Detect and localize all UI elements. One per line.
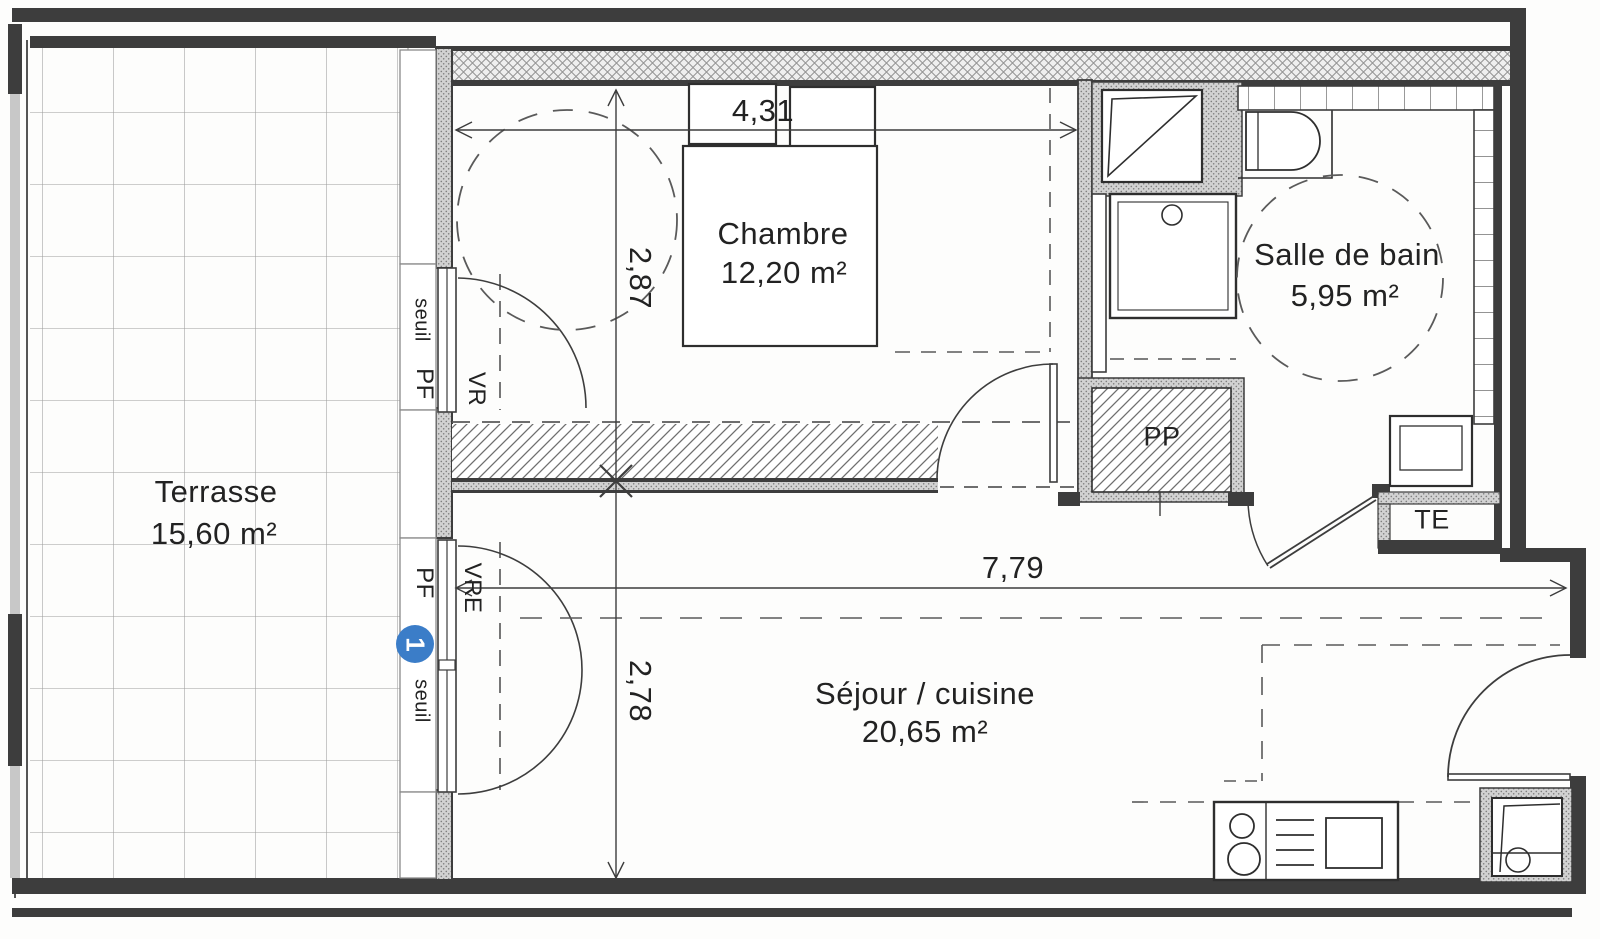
pf-top-label: PF [410,368,438,400]
position-marker-1-number: 1 [400,637,431,651]
sink-bowl [1246,112,1320,170]
dim-sejour-width: 7,79 [982,550,1044,586]
terrace-left-edge [8,24,27,898]
dim-sejour-depth: 2,78 [622,660,658,722]
technical-closet [1480,788,1572,882]
vr-label: VR [462,372,490,406]
wall-left-seg3 [436,790,452,880]
wardrobe-dashed-outline [895,88,1050,352]
door-swing-arc [1448,655,1570,777]
door-swing-arc [458,670,582,794]
wall-right-above-door [1570,562,1586,658]
wall-bathroom-right [1494,86,1502,548]
dim-chambre-depth: 2,87 [622,247,658,309]
slab-edge-bottom [12,908,1572,917]
porte-fenetre-vr [438,268,586,412]
wall-top-outer [12,8,1526,22]
pf-bottom-label: PF [410,567,438,599]
wall-terrace-top [30,36,436,48]
chambre-area: 12,20 m² [721,255,847,291]
wall-step [1500,548,1586,562]
soffit-hatched-band [452,422,1076,493]
pipe-chase [1092,194,1106,372]
sejour-lines [520,618,1560,802]
terrasse-label: Terrasse [155,474,278,510]
nightstand [790,87,875,147]
tile-strip-right [1474,110,1494,424]
kitchen-counter [1214,802,1398,880]
floor-plan-drawing [0,0,1600,939]
entrance-door [1448,655,1570,780]
position-marker-1: 1 [396,625,434,663]
floor-plan: Terrasse 15,60 m² Chambre 12,20 m² Salle… [0,0,1600,939]
shower-tray [1110,194,1236,359]
terrasse-area: 15,60 m² [151,516,277,552]
tile-strip-top [1238,86,1494,110]
bathroom-door [1248,484,1390,568]
terrace-tiled-floor [30,48,408,878]
threshold-strip [400,50,436,878]
seuil-top-label: seuil [410,298,433,342]
sejour-cuisine-label: Séjour / cuisine [815,676,1035,712]
chambre-label: Chambre [718,216,849,252]
dim-chambre-width: 4,31 [732,93,794,129]
pp-closet-label: PP [1143,422,1180,453]
seuil-bottom-label: seuil [410,679,433,723]
sejour-cuisine-area: 20,65 m² [862,714,988,750]
wall-right-upper [1510,8,1526,548]
chambre-door [937,364,1057,482]
salle-de-bain-label: Salle de bain [1254,237,1440,273]
sink-vanity [1238,108,1332,178]
wall-left-seg1 [436,48,452,268]
salle-de-bain-area: 5,95 m² [1291,278,1400,314]
wall-left-seg2 [436,408,452,538]
te-panel-label: TE [1414,505,1450,536]
vre-label: VRE [458,563,486,614]
